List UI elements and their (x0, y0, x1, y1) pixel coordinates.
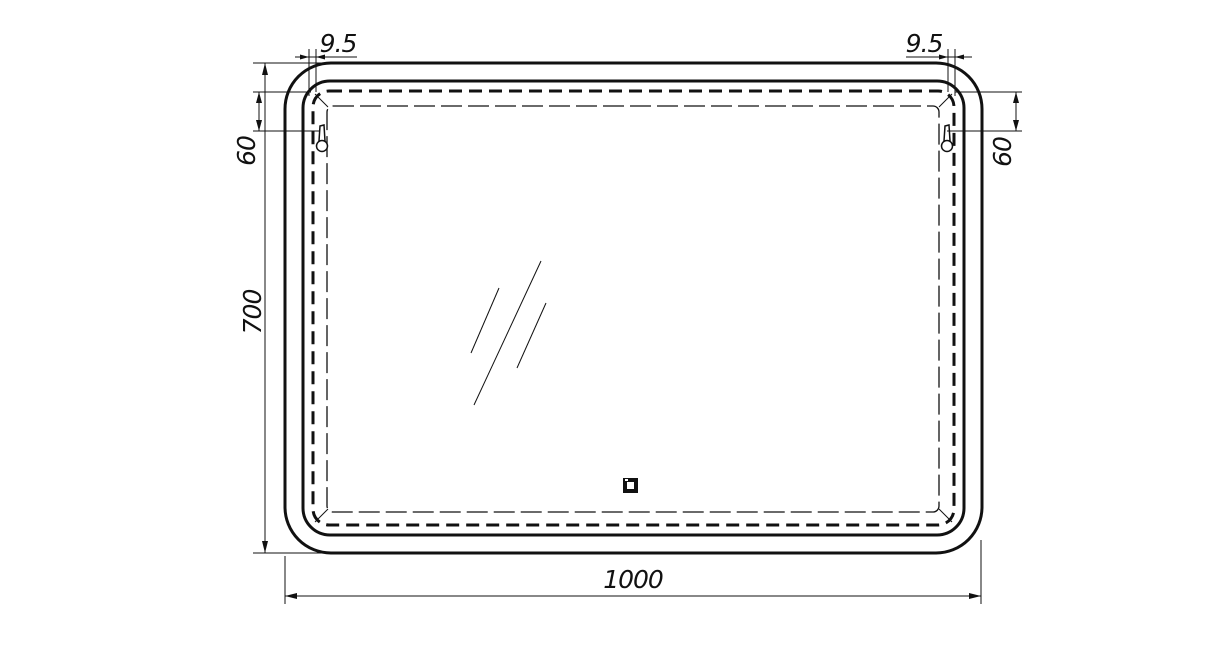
hanger-right-icon (942, 125, 953, 152)
corner-chamfer-line-bottom-left (315, 509, 328, 522)
touch-sensor-icon (623, 478, 638, 493)
arrowhead (262, 541, 268, 553)
hanger-left-hole (317, 141, 328, 152)
reflection-line-medium (517, 303, 546, 368)
touch-sensor-inner (627, 482, 634, 489)
hanger-left-stem (319, 125, 325, 141)
dim-hanger-offset-right-label: 60 (988, 137, 1017, 167)
hanger-right-hole (942, 141, 953, 152)
arrowhead (285, 593, 297, 599)
arrowhead (1013, 92, 1019, 103)
arrowhead (969, 593, 981, 599)
led-strip-dashed-outline (313, 91, 954, 525)
glass-reflection-icon (471, 261, 546, 405)
mirror-technical-drawing: 1000 700 60 60 9.5 (0, 0, 1230, 647)
dim-total-height-label: 700 (238, 290, 267, 335)
corner-chamfer-line-bottom-right (939, 509, 952, 522)
arrowhead (262, 63, 268, 75)
touch-sensor-notch (625, 479, 628, 481)
dim-hanger-offset-left-label: 60 (232, 136, 261, 166)
inner-frame-outline (303, 81, 964, 535)
reflection-line-short (471, 288, 499, 353)
arrowhead (256, 120, 262, 131)
arrowhead (1013, 120, 1019, 131)
arrowhead (256, 92, 262, 103)
hanger-right-stem (944, 125, 950, 141)
dim-edge-inset-left-label: 9.5 (320, 29, 357, 58)
dim-edge-inset-right-label: 9.5 (906, 29, 943, 58)
corner-chamfer-line-top-right (939, 94, 952, 107)
arrowhead (955, 55, 964, 60)
dim-total-width-label: 1000 (603, 565, 663, 594)
reflection-line-long (474, 261, 541, 405)
dim-hanger-offset-right: 60 (947, 92, 1022, 167)
inner-edge-dashed-outline (327, 106, 939, 512)
hanger-left-icon (317, 125, 328, 152)
dim-hanger-offset-left: 60 (232, 92, 319, 166)
arrowhead (300, 55, 309, 60)
dim-total-width: 1000 (285, 540, 981, 604)
drawing-canvas: 1000 700 60 60 9.5 (0, 0, 1230, 647)
corner-chamfer-line-top-left (315, 94, 328, 107)
